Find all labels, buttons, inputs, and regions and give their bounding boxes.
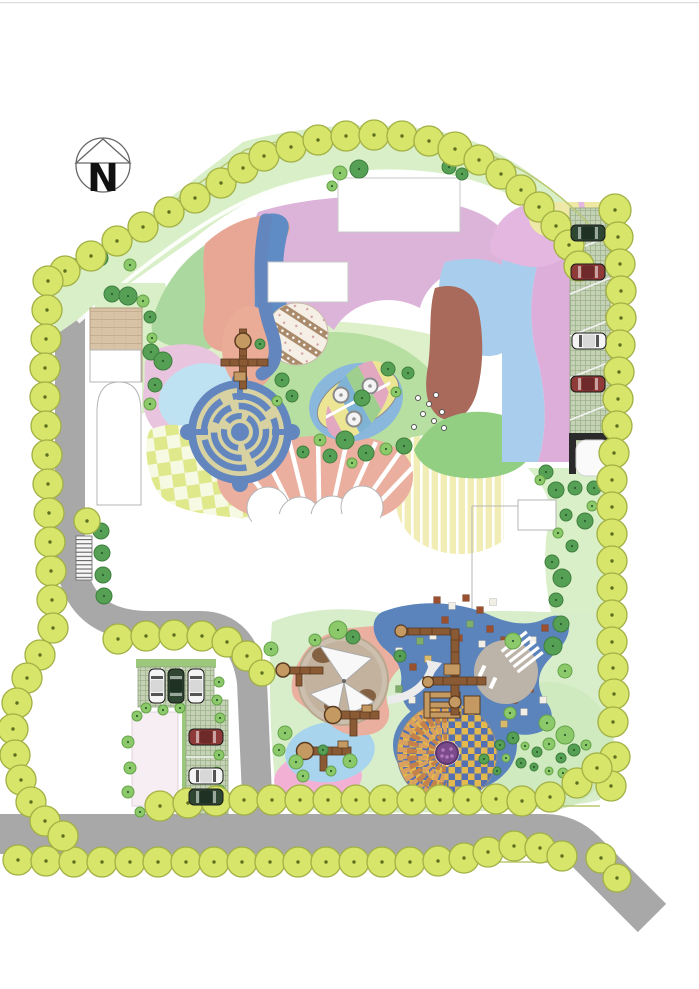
tree xyxy=(456,168,468,180)
tree xyxy=(347,458,357,468)
play-square xyxy=(521,709,528,716)
tree xyxy=(336,431,354,449)
car xyxy=(168,669,184,703)
shrub-dot xyxy=(442,426,447,431)
tree xyxy=(507,732,519,744)
tree xyxy=(199,847,229,877)
tree xyxy=(346,630,360,644)
tree xyxy=(95,567,111,583)
tree xyxy=(323,449,337,463)
tree xyxy=(343,754,357,768)
tree xyxy=(175,703,185,713)
tree xyxy=(158,705,168,715)
tree xyxy=(479,754,489,764)
tree xyxy=(285,785,315,815)
tree xyxy=(539,715,555,731)
tree xyxy=(214,677,224,687)
tree xyxy=(530,763,538,771)
tree xyxy=(582,753,612,783)
tree xyxy=(553,616,569,632)
tree xyxy=(394,650,406,662)
site-plan-drawing: N xyxy=(0,0,699,989)
tree xyxy=(602,411,632,441)
building-wing-north xyxy=(338,178,460,232)
tree xyxy=(333,166,347,180)
tree xyxy=(473,837,503,867)
tree xyxy=(502,754,510,762)
tree xyxy=(122,736,134,748)
play-square xyxy=(501,721,508,728)
tree xyxy=(556,726,574,744)
play-square xyxy=(417,638,424,645)
tree xyxy=(159,620,189,650)
tree xyxy=(327,181,337,191)
tree xyxy=(549,593,563,607)
tree xyxy=(425,785,455,815)
tree xyxy=(104,286,120,302)
tree xyxy=(599,679,629,709)
tree xyxy=(381,362,395,376)
brown-surface xyxy=(426,286,482,420)
play-square xyxy=(477,607,484,614)
tree xyxy=(144,398,156,410)
tree xyxy=(264,642,278,656)
tree xyxy=(369,785,399,815)
tree xyxy=(553,569,571,587)
tree xyxy=(556,753,566,763)
shrub-dot xyxy=(440,410,445,415)
tree xyxy=(76,241,106,271)
tree xyxy=(35,527,65,557)
car xyxy=(189,729,223,745)
tree xyxy=(581,740,591,750)
tree xyxy=(553,528,563,538)
car xyxy=(571,264,605,280)
tree xyxy=(521,742,529,750)
shrub-dot xyxy=(412,425,417,430)
tree xyxy=(598,707,628,737)
tree xyxy=(367,847,397,877)
building-west-block xyxy=(90,350,141,382)
tree xyxy=(215,713,225,723)
tree xyxy=(148,378,162,392)
tree xyxy=(597,492,627,522)
tree xyxy=(354,390,370,406)
tree xyxy=(115,847,145,877)
tree xyxy=(37,585,67,615)
tree xyxy=(33,469,63,499)
shrub-dot xyxy=(416,396,421,401)
tree xyxy=(38,613,68,643)
tree xyxy=(2,688,32,718)
tree xyxy=(276,132,306,162)
tree xyxy=(597,573,627,603)
tree xyxy=(30,353,60,383)
tree xyxy=(31,411,61,441)
tree xyxy=(34,498,64,528)
tree xyxy=(402,367,414,379)
tree xyxy=(119,287,137,305)
car xyxy=(571,376,605,392)
tree xyxy=(604,357,634,387)
car xyxy=(149,669,165,703)
tree xyxy=(605,330,635,360)
tree xyxy=(96,588,112,604)
play-square xyxy=(442,617,449,624)
tree xyxy=(359,120,389,150)
tree xyxy=(94,545,110,561)
play-square xyxy=(463,595,470,602)
tree xyxy=(606,276,636,306)
car xyxy=(189,789,223,805)
tree xyxy=(329,621,347,639)
play-square xyxy=(479,641,486,648)
tree xyxy=(227,847,257,877)
tree xyxy=(535,475,545,485)
tree xyxy=(273,744,285,756)
tree xyxy=(286,390,298,402)
tree xyxy=(396,438,412,454)
car xyxy=(571,225,605,241)
sheet-top-border xyxy=(0,2,699,3)
tree xyxy=(283,847,313,877)
tree xyxy=(566,540,578,552)
car xyxy=(572,333,606,349)
tree xyxy=(3,845,33,875)
shrub-dot xyxy=(427,402,432,407)
tree xyxy=(257,785,287,815)
tree xyxy=(507,786,537,816)
building-notch-east xyxy=(518,500,556,530)
tree xyxy=(395,847,425,877)
tree xyxy=(289,755,303,769)
trellis xyxy=(76,536,92,580)
building-wing-north2 xyxy=(268,262,348,302)
tree xyxy=(603,222,633,252)
tree xyxy=(135,807,145,817)
tree xyxy=(229,785,259,815)
tree xyxy=(122,786,134,798)
play-square xyxy=(487,626,494,633)
play-square xyxy=(434,597,441,604)
tree xyxy=(297,770,309,782)
tree xyxy=(154,197,184,227)
play-square xyxy=(542,625,549,632)
tree xyxy=(275,373,289,387)
tree xyxy=(255,339,265,349)
tree xyxy=(102,226,132,256)
tree xyxy=(131,621,161,651)
tree xyxy=(48,821,78,851)
tree xyxy=(311,847,341,877)
tree xyxy=(597,465,627,495)
tree xyxy=(548,482,564,498)
shrub-dot xyxy=(434,393,439,398)
tree xyxy=(603,864,631,892)
tree xyxy=(255,847,285,877)
tree xyxy=(36,556,66,586)
tree xyxy=(326,766,336,776)
tree xyxy=(103,624,133,654)
tree xyxy=(516,758,526,768)
tree xyxy=(303,125,333,155)
tree xyxy=(606,303,636,333)
tree xyxy=(132,711,142,721)
tree xyxy=(214,750,224,760)
tree xyxy=(249,660,275,686)
tree xyxy=(124,259,136,271)
tree xyxy=(143,847,173,877)
tree xyxy=(547,841,577,871)
tree xyxy=(545,555,559,569)
tree xyxy=(597,519,627,549)
tree xyxy=(423,846,453,876)
play-square xyxy=(467,621,474,628)
tree xyxy=(495,740,505,750)
tree xyxy=(32,440,62,470)
site-plan-sheet: N xyxy=(0,0,699,989)
tree xyxy=(599,438,629,468)
tree xyxy=(605,249,635,279)
tree xyxy=(297,446,309,458)
tree xyxy=(31,324,61,354)
tree xyxy=(453,785,483,815)
tree xyxy=(339,847,369,877)
tree xyxy=(249,141,279,171)
play-square xyxy=(449,603,456,610)
play-square xyxy=(410,664,417,671)
tree xyxy=(171,847,201,877)
north-label: N xyxy=(87,156,119,200)
tree xyxy=(278,726,292,740)
tree xyxy=(532,747,542,757)
tree xyxy=(358,445,374,461)
tree xyxy=(124,762,136,774)
play-square xyxy=(396,686,403,693)
car xyxy=(188,669,204,703)
tree xyxy=(597,546,627,576)
tree xyxy=(558,664,572,678)
tree xyxy=(30,382,60,412)
tree xyxy=(599,194,631,226)
tree xyxy=(543,738,555,750)
tree xyxy=(318,745,328,755)
building-west-dome xyxy=(97,382,141,505)
tree xyxy=(603,384,633,414)
tree xyxy=(568,744,580,756)
tree xyxy=(87,847,117,877)
tree xyxy=(535,782,565,812)
tree xyxy=(350,160,368,178)
tree xyxy=(560,509,572,521)
tree xyxy=(180,183,210,213)
tree xyxy=(380,443,392,455)
tree xyxy=(147,333,157,343)
tree xyxy=(568,481,582,495)
car xyxy=(189,768,223,784)
play-square xyxy=(540,697,547,704)
tree xyxy=(505,633,521,649)
tree xyxy=(597,600,627,630)
tree xyxy=(313,785,343,815)
purple-center xyxy=(436,742,458,764)
tree xyxy=(331,121,361,151)
tree xyxy=(212,695,222,705)
tree xyxy=(272,396,282,406)
tree xyxy=(545,767,553,775)
play-square xyxy=(490,599,497,606)
tree xyxy=(504,707,516,719)
tree xyxy=(587,501,597,511)
tree xyxy=(128,212,158,242)
tree xyxy=(391,387,401,397)
tree xyxy=(33,266,63,296)
tree xyxy=(341,785,371,815)
shrub-dot xyxy=(432,419,437,424)
tree xyxy=(154,352,172,370)
tree xyxy=(141,703,151,713)
tree xyxy=(32,295,62,325)
tree xyxy=(577,513,593,529)
tree xyxy=(31,846,61,876)
tree xyxy=(309,634,321,646)
tree xyxy=(144,311,156,323)
tree xyxy=(74,508,100,534)
tree xyxy=(137,295,149,307)
tree xyxy=(387,121,417,151)
shrub-dot xyxy=(421,412,426,417)
tree xyxy=(145,791,175,821)
tree xyxy=(397,785,427,815)
tree xyxy=(314,434,326,446)
tree xyxy=(544,637,562,655)
tree xyxy=(493,767,501,775)
